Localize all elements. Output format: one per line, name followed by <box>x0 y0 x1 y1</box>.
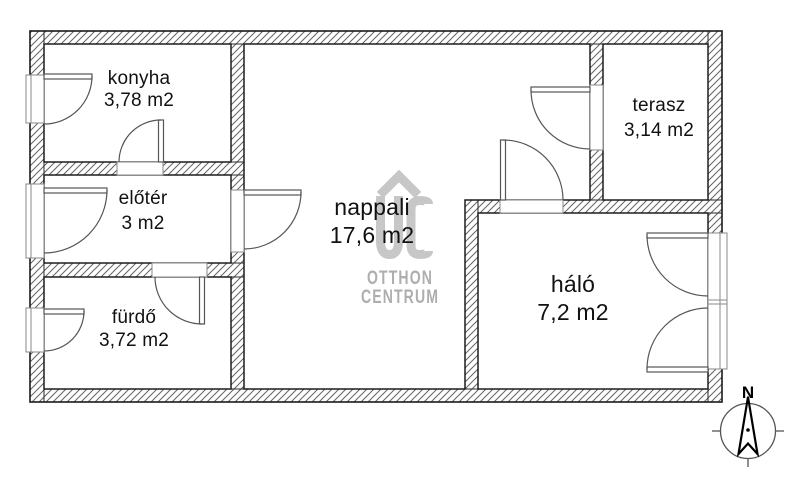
french-door-leaf-lower <box>647 367 708 372</box>
wall-top <box>30 31 722 44</box>
french-door-opening-halo <box>708 233 727 369</box>
room-area-terasz: 3,14 m2 <box>624 121 694 140</box>
room-area-eloter: 3 m2 <box>121 214 164 233</box>
room-label-halo: háló <box>551 273 595 296</box>
wall-eloter-furdo <box>44 263 244 277</box>
door-leaf-halo <box>501 140 506 200</box>
door-leaf-furdo <box>200 277 205 324</box>
compass-icon <box>712 396 784 467</box>
compass-north-label: N <box>742 384 754 401</box>
room-label-eloter: előtér <box>119 189 168 208</box>
wall-bottom <box>30 389 722 402</box>
door-opening-eloter-furdo <box>152 263 207 277</box>
door-opening-eloter-nappali <box>231 190 244 252</box>
window-leaf-konyha <box>44 74 92 79</box>
room-area-konyha: 3,78 m2 <box>104 91 174 110</box>
door-leaf-terasz <box>531 87 590 92</box>
window-leaf-furdo <box>44 309 84 314</box>
window-konyha <box>26 75 44 123</box>
door-leaf-konyha <box>159 120 164 162</box>
room-label-terasz: terasz <box>633 96 686 115</box>
room-area-furdo: 3,72 m2 <box>99 331 169 350</box>
compass-needle <box>739 397 758 454</box>
door-opening-konyha-eloter <box>117 162 163 175</box>
watermark-line2: CENTRUM <box>348 288 452 307</box>
room-label-furdo: fürdő <box>112 308 156 327</box>
door-leaf-entrance <box>44 188 107 193</box>
wall-nappali-halo <box>465 200 478 389</box>
door-leaf-eloter-nappali <box>244 190 301 195</box>
room-label-nappali: nappali <box>334 196 410 219</box>
room-label-konyha: konyha <box>108 69 170 88</box>
door-opening-nappali-halo <box>500 200 563 213</box>
room-area-nappali: 17,6 m2 <box>330 224 415 247</box>
french-door-leaf-upper <box>647 233 708 238</box>
room-area-halo: 7,2 m2 <box>537 301 609 324</box>
window-furdo <box>26 308 44 352</box>
door-opening-nappali-terasz <box>590 85 603 150</box>
floorplan-page: OTTHON CENTRUM konyha 3,78 m2 előtér 3 m… <box>0 0 800 484</box>
entrance-door-opening <box>26 184 44 258</box>
watermark-line1: OTTHON <box>348 269 452 288</box>
